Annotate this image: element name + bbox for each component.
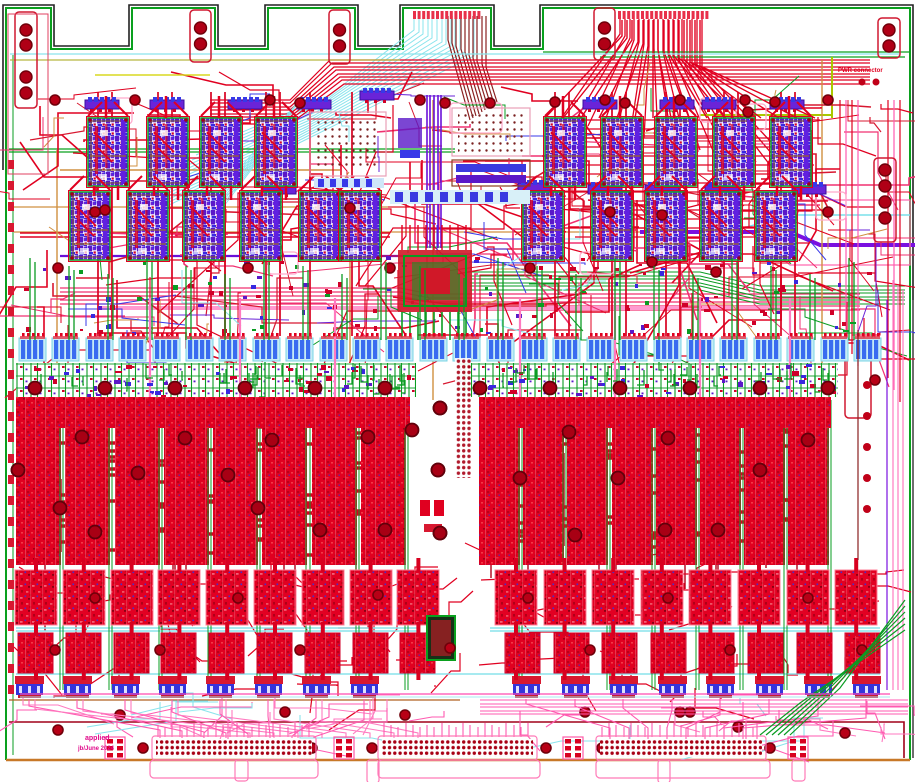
svg-text:jb/June 2024: jb/June 2024 [77,746,115,752]
svg-text:PWR connector: PWR connector [838,68,883,74]
svg-text:applied: applied [85,735,110,742]
